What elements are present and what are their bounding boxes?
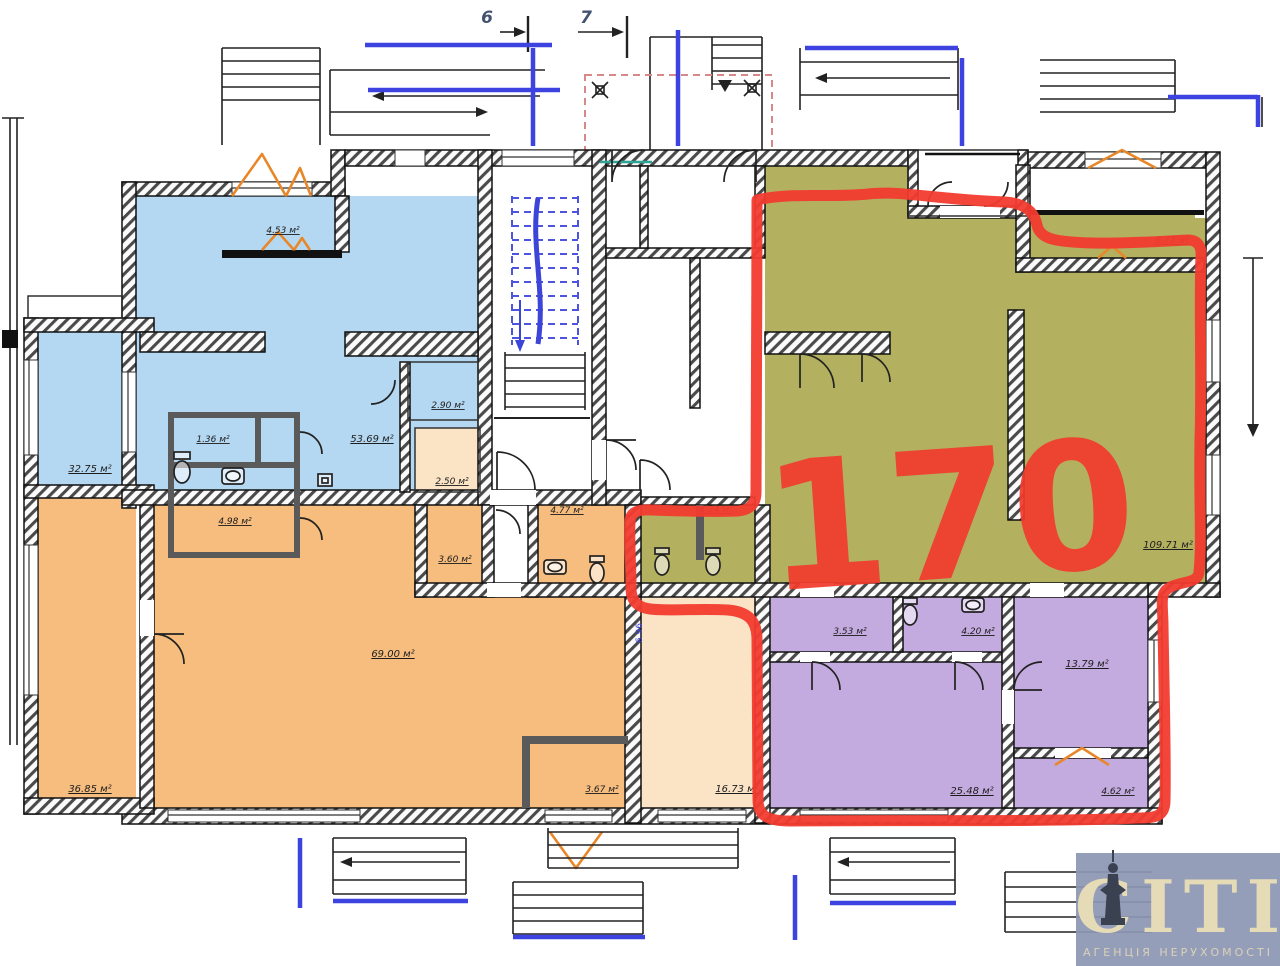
room-area-label: 3.67 м² [585,785,619,795]
grid-marker-7: 7 [578,8,627,58]
wall-dimension-label: 6.96 [635,623,645,643]
room-area-label: 4.20 м² [961,627,995,637]
room-area-label: 16.73 м² [715,784,758,795]
unit-number-annotation: 170 [757,400,1142,632]
room-area-label: 32.75 м² [68,464,111,475]
toilet-icon [655,548,669,575]
room-area-label: 3.53 м² [833,627,867,637]
floor-plan-drawing: 6 7 [0,0,1280,966]
room-area-label: 3.60 м² [438,555,472,565]
toilet-icon [590,556,604,583]
left-site-boundary [2,118,24,745]
bottom-balcony-lines [333,828,1152,934]
room-area-label: 109.71 м² [1143,540,1193,551]
sink-icon [544,560,566,574]
toilet-icon [174,452,190,483]
agency-logo: CITI АГЕНЦІЯ НЕРУХОМОСТІ [1075,850,1280,966]
floor-plan-canvas: 6 7 [0,0,1280,966]
room-area-label: 69.00 м² [371,649,414,660]
room-area-label: 1.36 м² [196,435,230,445]
room-area-label: 53.69 м² [350,434,393,445]
room-area-label: 4.77 м² [550,506,584,516]
grid-marker-7-label: 7 [580,8,592,28]
room-area-label: 2.90 м² [431,401,465,411]
room-area-label: 4.98 м² [218,517,252,527]
room-area-label: 2.50 м² [435,477,469,487]
room-area-label: 13.79 м² [1065,659,1108,670]
logo-tagline: АГЕНЦІЯ НЕРУХОМОСТІ [1083,946,1273,959]
dimension-line [1243,258,1263,437]
top-balcony-lines [222,37,1262,150]
room-area-label: 4.53 м² [266,226,300,236]
sink-icon [222,468,244,484]
room-area-label: 25.48 м² [950,786,993,797]
staircase [494,196,590,418]
toilet-icon [706,548,720,575]
room-area-label: 36.85 м² [68,784,111,795]
room-area-label: 4.62 м² [1101,787,1135,797]
logo-brand-text: CITI [1075,864,1280,949]
drain-icon [318,474,332,486]
grid-marker-6-label: 6 [481,8,493,28]
